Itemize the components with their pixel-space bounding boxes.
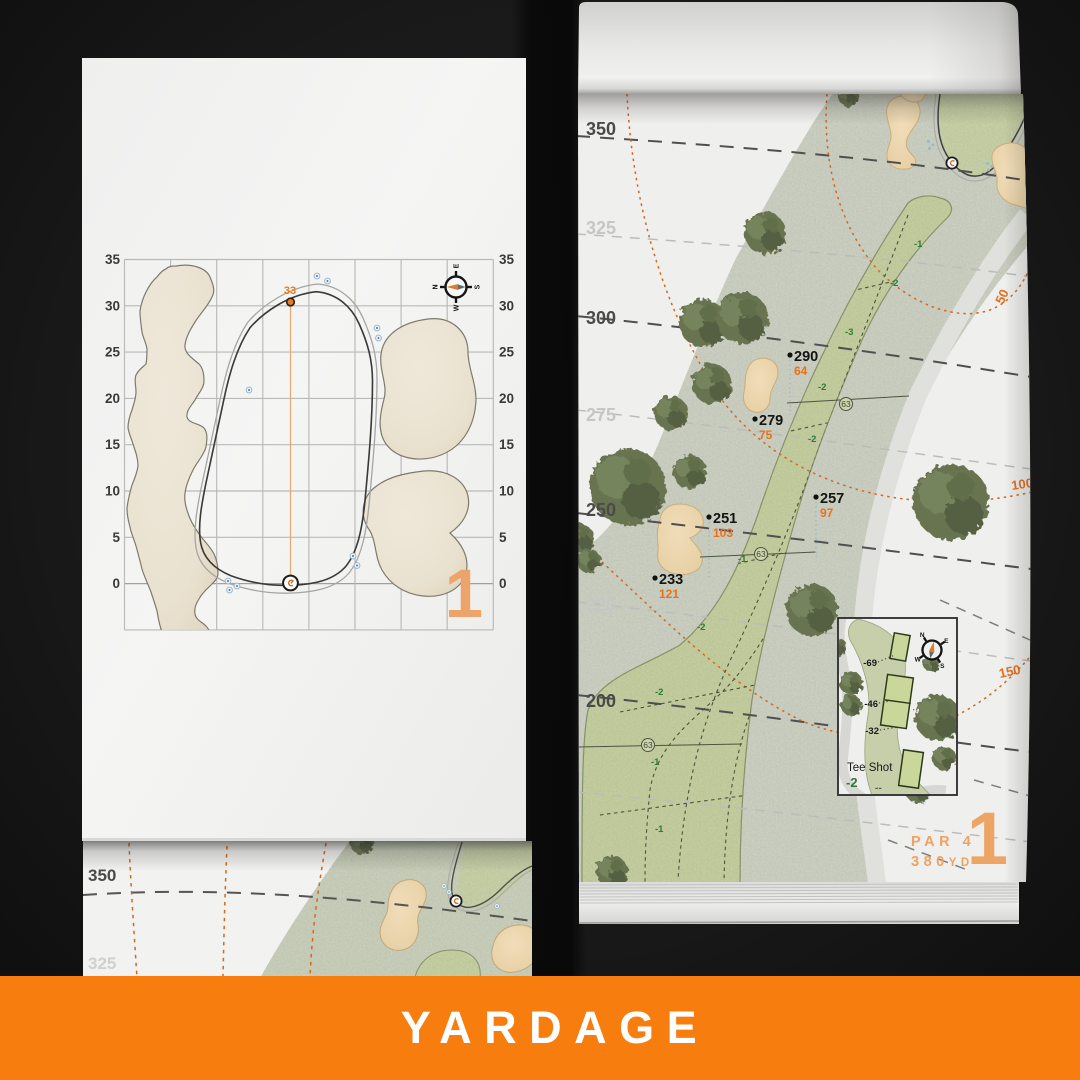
svg-text:275: 275 [586,405,616,425]
svg-text:33: 33 [284,285,296,297]
svg-text:225: 225 [586,595,616,615]
svg-text:75: 75 [759,428,773,442]
svg-text:S: S [940,663,945,670]
svg-text:257: 257 [820,491,844,507]
svg-text:-2: -2 [846,775,858,790]
svg-text:279: 279 [759,413,783,429]
svg-text:103: 103 [713,526,733,540]
svg-text:5: 5 [499,530,507,545]
svg-text:W: W [453,304,460,311]
svg-text:-1: -1 [651,757,660,768]
svg-text:-2: -2 [890,278,898,289]
svg-text:97: 97 [820,506,834,520]
svg-text:290: 290 [794,349,818,365]
svg-text:35: 35 [499,252,515,267]
svg-text:-32: -32 [865,726,879,737]
svg-text:300: 300 [586,308,616,328]
svg-text:30: 30 [499,298,514,313]
svg-text:35: 35 [105,252,121,267]
svg-text:-69: -69 [863,658,877,669]
svg-text:250: 250 [586,500,616,520]
svg-text:20: 20 [105,391,120,406]
svg-text:200: 200 [586,691,616,711]
svg-text:25: 25 [499,345,515,360]
svg-text:-3: -3 [845,327,853,338]
svg-text:325: 325 [88,954,116,973]
svg-text:W: W [915,656,922,663]
svg-text:1: 1 [967,797,1008,880]
svg-text:380YD: 380YD [911,854,974,870]
svg-text:--: -- [875,783,882,794]
svg-text:E: E [453,263,460,268]
svg-text:25: 25 [105,345,121,360]
svg-text:10: 10 [499,484,514,499]
svg-text:-1: -1 [738,554,747,565]
svg-text:233: 233 [659,572,683,588]
svg-text:15: 15 [499,437,515,452]
svg-text:E: E [944,638,949,645]
svg-text:-2: -2 [818,382,826,393]
svg-text:251: 251 [713,511,737,527]
svg-text:20: 20 [499,391,514,406]
svg-text:64: 64 [794,364,808,378]
svg-text:0: 0 [112,576,120,591]
svg-text:63: 63 [841,399,851,409]
svg-text:N: N [920,632,925,639]
svg-text:325: 325 [586,218,616,238]
svg-text:YARDAGE: YARDAGE [401,1002,709,1053]
svg-text:-2: -2 [808,434,816,445]
svg-text:N: N [432,284,439,289]
svg-text:PAR 4: PAR 4 [911,834,975,850]
svg-text:1: 1 [445,555,483,632]
svg-text:15: 15 [105,437,121,452]
svg-text:S: S [474,284,481,289]
svg-text:10: 10 [105,484,120,499]
svg-text:-46: -46 [864,699,878,710]
svg-text:0: 0 [499,576,507,591]
svg-text:-1: -1 [655,824,664,835]
svg-text:121: 121 [659,587,679,601]
svg-text:63: 63 [756,549,766,559]
svg-text:-2: -2 [697,622,705,633]
svg-text:30: 30 [105,298,120,313]
svg-text:63: 63 [643,740,653,750]
svg-text:Tee Shot: Tee Shot [847,762,893,774]
svg-text:5: 5 [112,530,120,545]
svg-text:-2: -2 [655,687,663,698]
svg-text:-1: -1 [914,239,923,250]
